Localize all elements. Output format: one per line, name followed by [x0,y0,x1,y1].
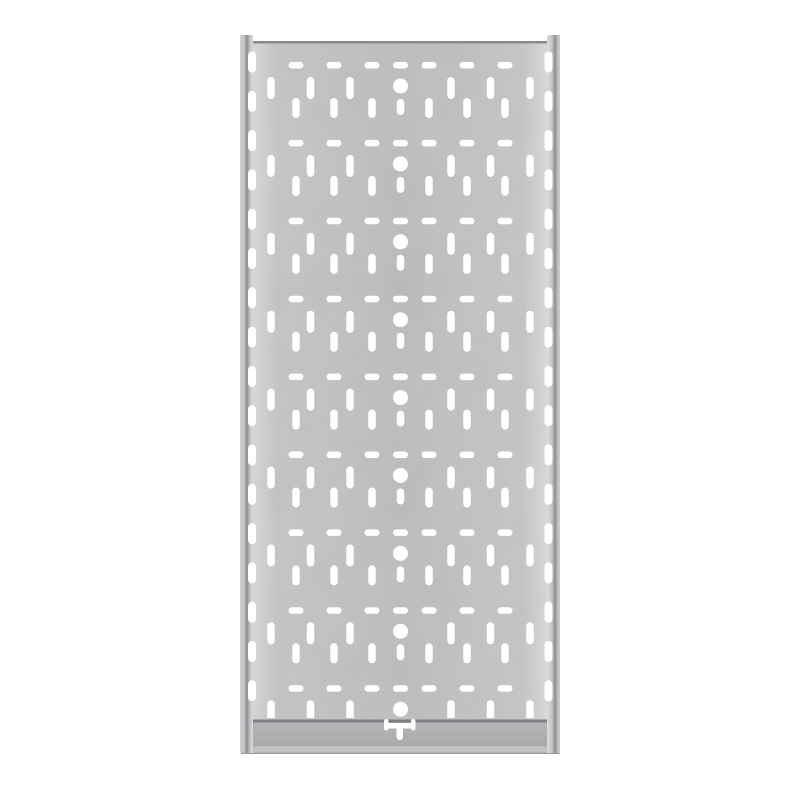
dash-slot-hole [327,607,342,614]
vertical-slot-hole [526,233,534,255]
vertical-slot-hole [487,544,495,566]
dash-slot-hole [289,296,304,303]
round-hole [393,234,408,249]
vertical-slot-hole [447,77,455,99]
vertical-slot-hole [463,98,471,118]
dash-slot-hole [498,296,513,303]
dash-slot-hole [460,296,475,303]
dash-slot-hole [422,374,437,381]
dash-slot-hole [393,452,408,459]
fold-slot-hole [545,52,553,73]
vertical-slot-hole [307,544,315,566]
vertical-slot-hole [501,488,509,508]
dash-slot-hole [422,218,437,225]
vertical-slot-hole [425,332,433,352]
coupler-stem-cutout [397,726,404,740]
cable-tray-panel-svg [0,0,800,800]
vertical-slot-hole [487,311,495,333]
vertical-slot-hole [346,77,354,99]
vertical-slot-hole [368,332,376,352]
round-hole [393,156,408,171]
vertical-slot-hole [368,176,376,196]
round-hole [393,79,408,94]
dash-slot-hole [327,529,342,536]
end-band-lip-edge [241,753,560,755]
fold-slot-hole [248,91,256,112]
dash-slot-hole [289,62,304,69]
vertical-slot-hole [368,98,376,118]
fold-slot-hole [545,130,553,151]
vertical-slot-hole [425,254,433,274]
dash-slot-hole [365,296,380,303]
vertical-slot-hole [267,77,275,99]
vertical-slot-hole [447,311,455,333]
vertical-slot-hole [346,233,354,255]
vertical-slot-hole [463,488,471,508]
dash-slot-hole [327,374,342,381]
center-slot-hole [397,333,405,349]
fold-slot-hole [248,680,256,701]
vertical-slot-hole [526,311,534,333]
dash-slot-hole [365,140,380,147]
end-band-lip [241,746,560,753]
dash-slot-hole [393,218,408,225]
vertical-slot-hole [487,389,495,411]
vertical-slot-hole [330,176,338,196]
vertical-slot-hole [292,565,300,585]
vertical-slot-hole [346,389,354,411]
dash-slot-hole [289,529,304,536]
fold-slot-hole [248,641,256,662]
vertical-slot-hole [501,643,509,663]
fold-slot-hole [545,523,553,544]
vertical-slot-hole [292,643,300,663]
vertical-slot-hole [330,332,338,352]
vertical-slot-hole [267,233,275,255]
vertical-slot-hole [368,254,376,274]
dash-slot-hole [498,685,513,692]
fold-slot-hole [545,602,553,623]
vertical-slot-hole [487,622,495,644]
vertical-slot-hole [487,467,495,489]
vertical-slot-hole [368,643,376,663]
vertical-slot-hole [292,332,300,352]
dash-slot-hole [393,62,408,69]
dash-slot-hole [498,607,513,614]
dash-slot-hole [393,140,408,147]
vertical-slot-hole [425,410,433,430]
round-hole [393,624,408,639]
vertical-slot-hole [330,643,338,663]
fold-slot-hole [248,327,256,348]
center-slot-hole [397,255,405,271]
vertical-slot-hole [501,410,509,430]
vertical-slot-hole [447,389,455,411]
dash-slot-hole [393,296,408,303]
center-slot-hole [397,411,405,427]
dash-slot-hole [327,296,342,303]
vertical-slot-hole [346,467,354,489]
dash-slot-hole [498,529,513,536]
fold-slot-hole [545,405,553,426]
fold-slot-hole [545,169,553,190]
dash-slot-hole [393,685,408,692]
dash-slot-hole [289,140,304,147]
fold-slot-hole [248,169,256,190]
vertical-slot-hole [463,643,471,663]
vertical-slot-hole [447,467,455,489]
vertical-slot-hole [463,176,471,196]
vertical-slot-hole [307,389,315,411]
vertical-slot-hole [425,565,433,585]
dash-slot-hole [422,296,437,303]
dash-slot-hole [365,62,380,69]
round-hole [393,312,408,327]
dash-slot-hole [393,529,408,536]
dash-slot-hole [422,140,437,147]
fold-slot-hole [545,91,553,112]
fold-slot-hole [545,327,553,348]
fold-slot-hole [545,445,553,466]
dash-slot-hole [460,218,475,225]
dash-slot-hole [460,607,475,614]
fold-slot-hole [248,248,256,269]
round-hole [393,468,408,483]
vertical-slot-hole [346,622,354,644]
dash-slot-hole [327,452,342,459]
vertical-slot-hole [487,233,495,255]
fold-slot-hole [545,562,553,583]
fold-slot-hole [545,484,553,505]
vertical-slot-hole [526,544,534,566]
vertical-slot-hole [346,155,354,177]
vertical-slot-hole [526,155,534,177]
vertical-slot-hole [307,622,315,644]
vertical-slot-hole [330,488,338,508]
fold-slot-hole [248,523,256,544]
center-slot-hole [397,99,405,115]
dash-slot-hole [422,529,437,536]
fold-slot-hole [248,287,256,308]
vertical-slot-hole [425,488,433,508]
fold-slot-hole [545,287,553,308]
vertical-slot-hole [463,565,471,585]
fold-slot-hole [248,602,256,623]
dash-slot-hole [460,140,475,147]
dash-slot-hole [498,452,513,459]
fold-slot-hole [248,405,256,426]
vertical-slot-hole [368,410,376,430]
fold-slot-hole [545,641,553,662]
vertical-slot-hole [487,155,495,177]
dash-slot-hole [422,607,437,614]
vertical-slot-hole [292,176,300,196]
vertical-slot-hole [463,332,471,352]
panel-bottom-edge [248,720,552,723]
dash-slot-hole [289,374,304,381]
dash-slot-hole [460,452,475,459]
vertical-slot-hole [501,332,509,352]
vertical-slot-hole [330,565,338,585]
vertical-slot-hole [368,488,376,508]
dash-slot-hole [422,685,437,692]
dash-slot-hole [365,374,380,381]
dash-slot-hole [422,452,437,459]
fold-slot-hole [248,366,256,387]
vertical-slot-hole [526,77,534,99]
dash-slot-hole [422,62,437,69]
vertical-slot-hole [267,389,275,411]
vertical-slot-hole [267,467,275,489]
dash-slot-hole [327,62,342,69]
vertical-slot-hole [501,176,509,196]
dash-slot-hole [365,685,380,692]
fold-slot-hole [545,680,553,701]
fold-slot-hole [248,52,256,73]
cable-tray-panel [0,0,800,800]
vertical-slot-hole [425,643,433,663]
vertical-slot-hole [267,155,275,177]
vertical-slot-hole [307,233,315,255]
center-slot-hole [397,489,405,505]
dash-slot-hole [365,452,380,459]
fold-slot-hole [248,130,256,151]
vertical-slot-hole [330,410,338,430]
fold-slot-hole [248,445,256,466]
dash-slot-hole [498,374,513,381]
vertical-slot-hole [487,77,495,99]
round-hole [393,390,408,405]
dash-slot-hole [365,529,380,536]
vertical-slot-hole [447,155,455,177]
vertical-slot-hole [346,311,354,333]
dash-slot-hole [327,140,342,147]
vertical-slot-hole [447,544,455,566]
vertical-slot-hole [307,311,315,333]
vertical-slot-hole [463,254,471,274]
vertical-slot-hole [463,410,471,430]
fold-slot-hole [248,209,256,230]
dash-slot-hole [289,685,304,692]
dash-slot-hole [393,374,408,381]
dash-slot-hole [393,607,408,614]
dash-slot-hole [327,218,342,225]
center-slot-hole [397,566,405,582]
fold-slot-hole [545,366,553,387]
vertical-slot-hole [307,467,315,489]
vertical-slot-hole [292,254,300,274]
center-slot-hole [397,644,405,660]
vertical-slot-hole [267,311,275,333]
vertical-slot-hole [307,155,315,177]
round-hole [393,546,408,561]
vertical-slot-hole [368,565,376,585]
dash-slot-hole [460,685,475,692]
vertical-slot-hole [447,233,455,255]
vertical-slot-hole [501,565,509,585]
dash-slot-hole [289,452,304,459]
fold-slot-hole [545,209,553,230]
vertical-slot-hole [501,254,509,274]
vertical-slot-hole [330,98,338,118]
dash-slot-hole [365,218,380,225]
center-slot-hole [397,177,405,193]
panel-top-edge [253,41,547,44]
dash-slot-hole [498,218,513,225]
product-photo [0,0,800,800]
dash-slot-hole [498,140,513,147]
dash-slot-hole [289,607,304,614]
vertical-slot-hole [267,622,275,644]
dash-slot-hole [460,374,475,381]
round-hole [393,702,408,717]
vertical-slot-hole [267,544,275,566]
vertical-slot-hole [526,467,534,489]
fold-slot-hole [248,484,256,505]
vertical-slot-hole [307,77,315,99]
fold-slot-hole [545,248,553,269]
vertical-slot-hole [330,254,338,274]
vertical-slot-hole [447,622,455,644]
dash-slot-hole [289,218,304,225]
dash-slot-hole [460,529,475,536]
dash-slot-hole [498,62,513,69]
vertical-slot-hole [526,389,534,411]
vertical-slot-hole [526,622,534,644]
dash-slot-hole [327,685,342,692]
dash-slot-hole [460,62,475,69]
vertical-slot-hole [292,488,300,508]
vertical-slot-hole [346,544,354,566]
vertical-slot-hole [425,176,433,196]
vertical-slot-hole [292,98,300,118]
vertical-slot-hole [501,98,509,118]
vertical-slot-hole [292,410,300,430]
dash-slot-hole [365,607,380,614]
fold-slot-hole [248,562,256,583]
vertical-slot-hole [425,98,433,118]
